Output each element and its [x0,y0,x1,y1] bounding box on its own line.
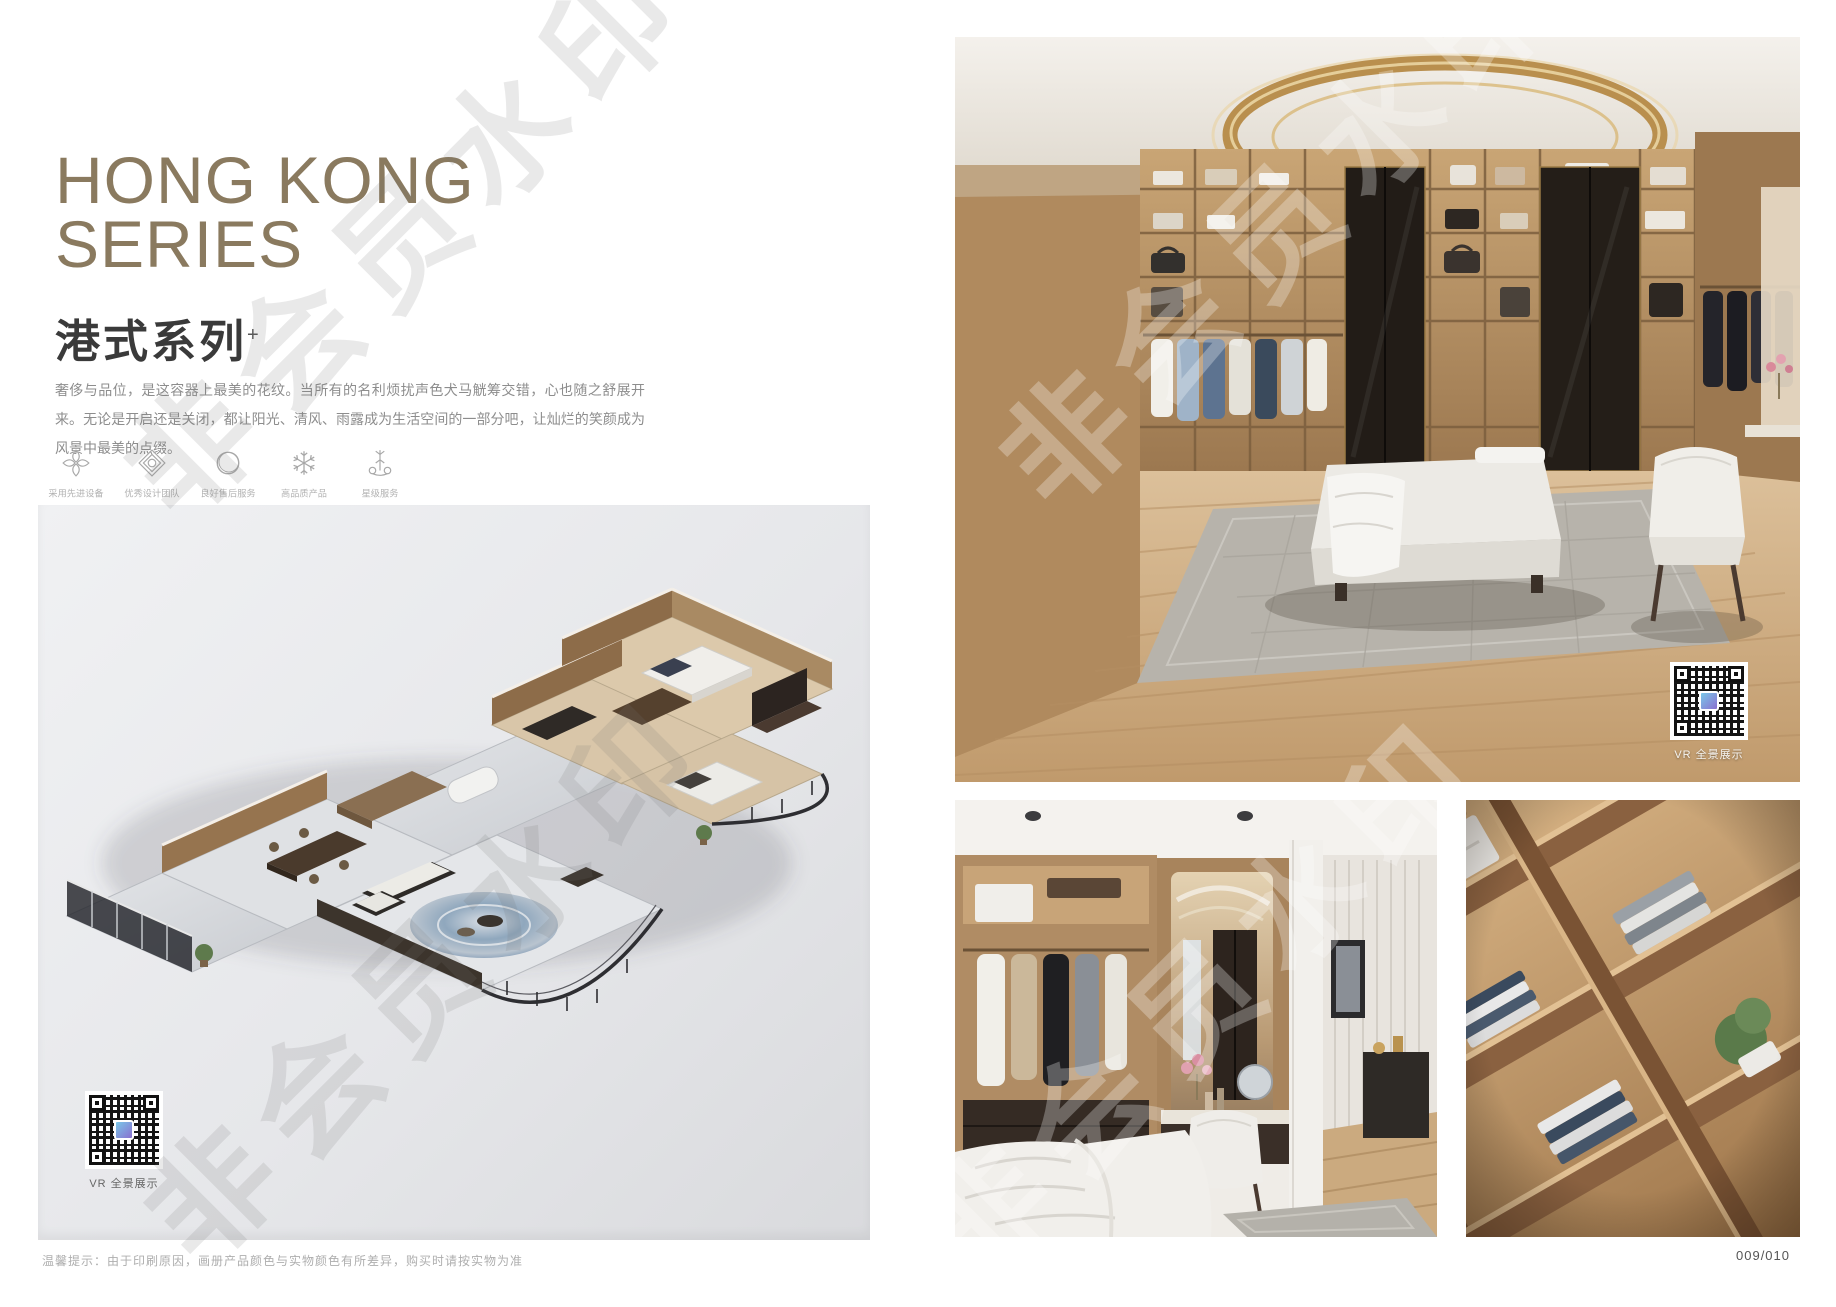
series-title-line1: HONG KONG [55,148,475,212]
series-subtitle-plus: + [247,324,262,346]
snowflake-icon [289,448,319,478]
floorplan-panel: VR 全景展示 [38,505,870,1240]
vr-cube-logo-icon [1699,691,1719,711]
feature-list: 采用先进设备 优秀设计团队 良好售后服务 [45,448,411,500]
feature-after-sales: 良好售后服务 [197,448,259,500]
feature-equipment: 采用先进设备 [45,448,107,500]
catalog-page: 非会员水印 非会员水印 非会员水印 非会员水印 HONG KONG SERIES… [0,0,1836,1307]
feature-label: 星级服务 [362,486,399,500]
series-title-line2: SERIES [55,212,475,276]
floorplan-vr-qr-block: VR 全景展示 [83,1091,165,1191]
diamond-ornament-icon [137,448,167,478]
feature-label: 优秀设计团队 [124,486,179,500]
feature-design-team: 优秀设计团队 [121,448,183,500]
photo-vr-qr-block: VR 全景展示 [1668,662,1750,762]
feature-star-service: 星级服务 [349,448,411,500]
qr-finder-icon [89,1149,105,1165]
vr-caption: VR 全景展示 [83,1175,165,1191]
page-number: 009/010 [1736,1248,1790,1263]
series-title: HONG KONG SERIES [55,148,475,276]
petal-ornament-icon [61,448,91,478]
shelf-closeup-photo [1466,800,1800,1237]
qr-finder-icon [89,1095,105,1111]
isometric-floorplan-render [52,533,856,1133]
walkin-closet-photo: VR 全景展示 [955,37,1800,782]
qr-finder-icon [1674,666,1690,682]
feature-label: 高品质产品 [281,486,327,500]
qr-code [1670,662,1748,740]
qr-finder-icon [1728,666,1744,682]
feature-label: 良好售后服务 [200,486,255,500]
series-subtitle-text: 港式系列 [55,316,247,367]
ring-icon [213,448,243,478]
vr-cube-logo-icon [114,1120,134,1140]
vr-caption: VR 全景展示 [1668,746,1750,762]
print-disclaimer: 温馨提示：由于印刷原因，画册产品颜色与实物颜色有所差异，购买时请按实物为准 [42,1252,523,1269]
feature-label: 采用先进设备 [48,486,103,500]
star-ornament-icon [365,448,395,478]
qr-code [85,1091,163,1169]
qr-finder-icon [1674,720,1690,736]
qr-finder-icon [143,1095,159,1111]
feature-quality: 高品质产品 [273,448,335,500]
dressing-area-photo [955,800,1437,1237]
series-subtitle: 港式系列+ [55,305,262,370]
